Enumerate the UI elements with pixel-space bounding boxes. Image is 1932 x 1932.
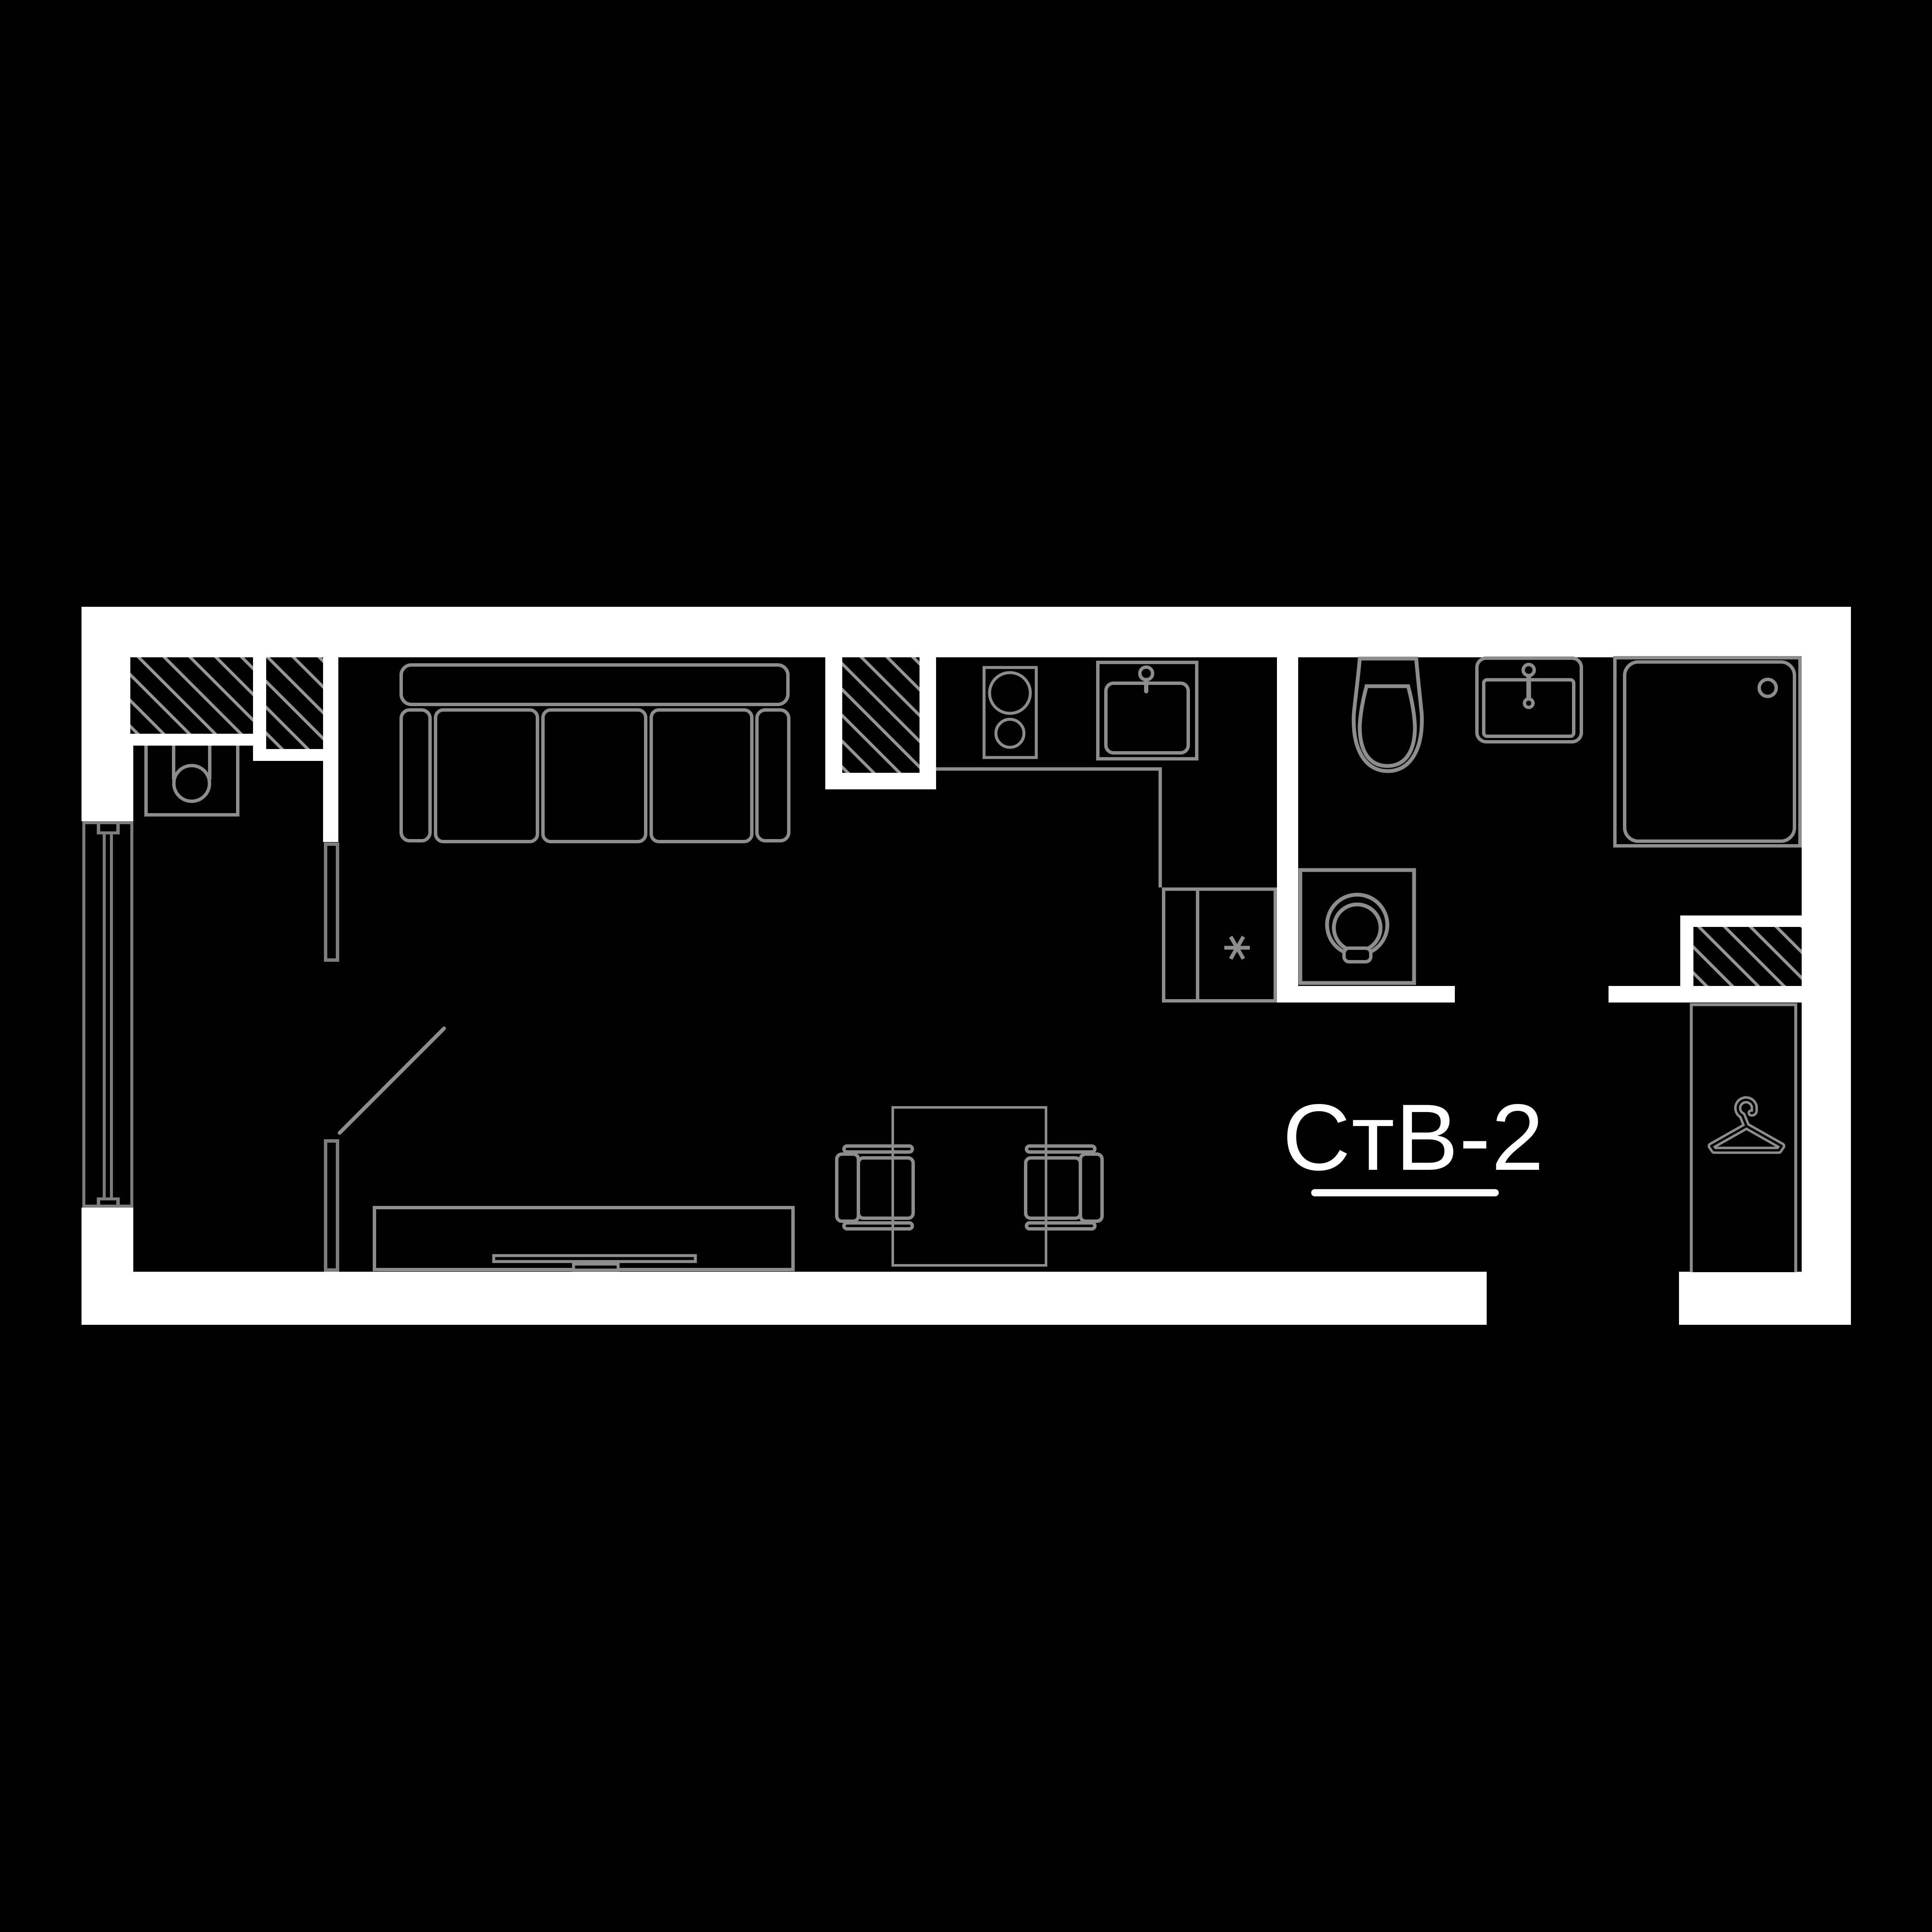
svg-text:СтВ-2: СтВ-2 xyxy=(1282,1085,1544,1190)
